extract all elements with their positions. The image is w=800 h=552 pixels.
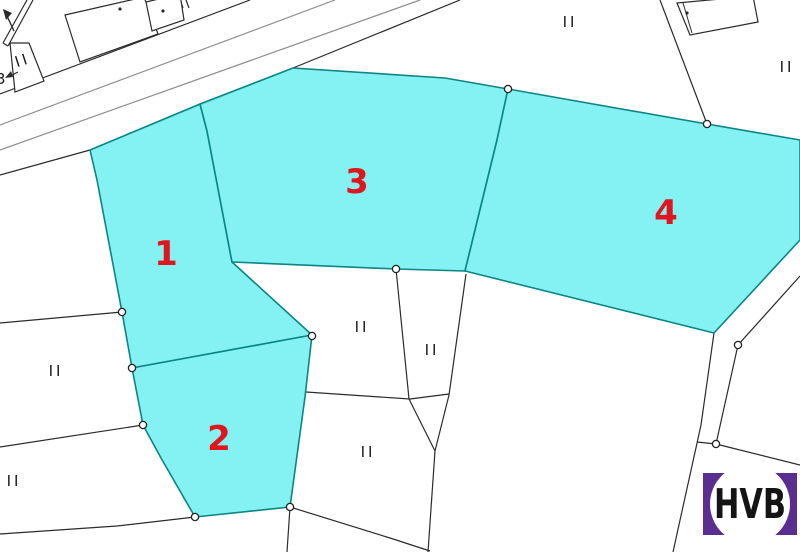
zone-marker: II	[563, 13, 578, 31]
parcel-number-label-2: 2	[207, 419, 231, 459]
vertex-marker	[308, 332, 315, 339]
edge-annotation-label: 3	[0, 70, 6, 88]
cadastral-map-svg: 1234IIIIIIIIIIIIIIII3HVB	[0, 0, 800, 552]
zone-marker: II	[7, 472, 22, 490]
zone-marker: II	[49, 362, 64, 380]
zone-marker: II	[361, 443, 376, 461]
logo-text: HVB	[714, 480, 786, 528]
vertex-marker	[392, 265, 399, 272]
zone-marker: II	[780, 58, 795, 76]
parcel-number-label-4: 4	[654, 193, 678, 233]
parcel-number-label-1: 1	[154, 234, 178, 274]
vertex-marker	[712, 440, 719, 447]
vertex-marker	[118, 308, 125, 315]
cadastral-map-screenshot: 1234IIIIIIIIIIIIIIII3HVB	[0, 0, 800, 552]
building-dot	[161, 9, 164, 12]
vertex-marker	[504, 85, 511, 92]
vertex-marker	[128, 364, 135, 371]
vertex-marker	[286, 503, 293, 510]
zone-marker: II	[355, 318, 370, 336]
building-dot	[685, 11, 688, 14]
building-dot	[118, 7, 121, 10]
parcel-number-label-3: 3	[345, 162, 369, 202]
vertex-marker	[139, 421, 146, 428]
zone-marker: II	[425, 341, 440, 359]
hvb-logo: HVB	[703, 464, 797, 544]
vertex-marker	[734, 341, 741, 348]
vertex-marker	[191, 513, 198, 520]
vertex-marker	[703, 120, 710, 127]
